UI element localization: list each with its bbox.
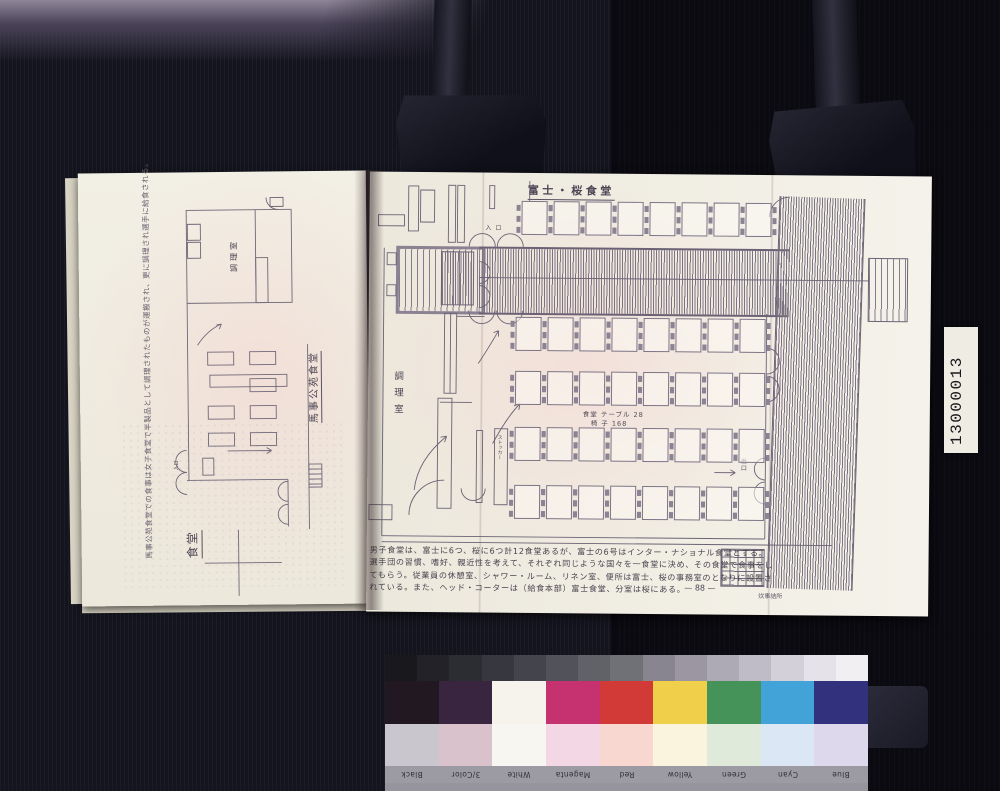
chair <box>766 433 770 439</box>
pastel-patch <box>385 724 439 766</box>
chair <box>669 490 673 496</box>
chair <box>541 500 545 506</box>
chair <box>701 501 705 507</box>
grayscale-step <box>449 655 481 681</box>
chair <box>542 386 546 392</box>
chair <box>573 489 577 495</box>
left-dining-label: 食堂 <box>183 530 202 558</box>
patch-label: Red <box>600 766 654 783</box>
dining-table <box>610 428 636 462</box>
chair <box>766 399 770 405</box>
chair <box>670 443 674 449</box>
chair <box>734 433 738 439</box>
chair <box>644 217 648 223</box>
chair <box>670 432 674 438</box>
chair <box>639 322 643 328</box>
dining-table <box>643 372 669 406</box>
patch-label: 3/Color <box>439 766 493 783</box>
dining-table <box>514 485 540 519</box>
chair <box>701 454 705 460</box>
left-floorplan <box>78 171 371 607</box>
chair <box>701 512 705 518</box>
grayscale-step <box>385 655 417 681</box>
pastel-row <box>385 724 868 766</box>
chair <box>517 205 521 211</box>
chair <box>606 432 610 438</box>
book-clip-stem <box>431 0 472 101</box>
chair <box>766 377 770 383</box>
chair <box>702 333 706 339</box>
chair <box>542 397 546 403</box>
chair <box>574 431 578 437</box>
chair <box>574 386 578 392</box>
chair <box>670 376 674 382</box>
chair <box>708 218 712 224</box>
chair <box>541 453 545 459</box>
dining-table <box>675 372 701 406</box>
chair <box>735 323 739 329</box>
grayscale-step <box>771 655 803 681</box>
chair <box>574 343 578 349</box>
chair <box>607 322 611 328</box>
chair <box>766 444 770 450</box>
color-patch <box>761 681 815 724</box>
chair <box>638 344 642 350</box>
chair <box>573 511 577 517</box>
chair <box>606 443 610 449</box>
color-patch <box>546 681 600 724</box>
chair <box>605 454 609 460</box>
dining-table <box>521 201 547 235</box>
dining-table <box>553 201 579 235</box>
chair <box>638 387 642 393</box>
dining-table <box>707 373 733 407</box>
chair <box>703 322 707 328</box>
chair <box>638 432 642 438</box>
chair <box>638 398 642 404</box>
chair <box>766 388 770 394</box>
chair <box>671 322 675 328</box>
chair <box>574 442 578 448</box>
page-number: — 88 — <box>684 583 715 592</box>
chair <box>766 334 770 340</box>
chair <box>549 205 553 211</box>
dining-table <box>643 318 669 352</box>
chair <box>637 501 641 507</box>
chair <box>606 344 610 350</box>
chair <box>637 454 641 460</box>
chair <box>765 455 769 461</box>
chair <box>772 229 776 235</box>
chair <box>734 377 738 383</box>
chair <box>580 227 584 233</box>
dining-table <box>611 318 637 352</box>
chair <box>509 453 513 459</box>
chair <box>677 206 681 212</box>
chair <box>766 345 770 351</box>
dining-table <box>546 485 572 519</box>
patch-label: Blue <box>814 766 868 783</box>
chair <box>638 333 642 339</box>
chair <box>740 229 744 235</box>
chair <box>511 321 515 327</box>
kodak-brand-strip: Kodak Color Control Patches © Kodak, 200… <box>385 783 868 791</box>
dining-table <box>610 486 636 520</box>
dining-table <box>739 373 765 407</box>
body-paragraph: 男子食堂は、富士に6つ、桜に6つ計12食堂あるが、富士の6号はインター・ナショナ… <box>369 544 799 597</box>
chair <box>516 216 520 222</box>
dining-table <box>547 371 573 405</box>
archival-id-number: 13000013 <box>948 356 966 445</box>
chair <box>605 512 609 518</box>
chair <box>542 431 546 437</box>
chair <box>765 513 769 519</box>
dining-table <box>546 427 572 461</box>
chair <box>702 432 706 438</box>
pastel-patch <box>492 724 546 766</box>
chair <box>637 490 641 496</box>
chair <box>606 333 610 339</box>
chair <box>670 398 674 404</box>
dining-table <box>706 487 732 521</box>
chair <box>670 344 674 350</box>
archival-id-label: 13000013 <box>944 327 978 453</box>
grayscale-step <box>482 655 514 681</box>
chair <box>613 206 617 212</box>
dining-table <box>578 427 604 461</box>
dining-table <box>681 202 707 236</box>
chair <box>509 500 513 506</box>
pastel-patch <box>814 724 868 766</box>
chair <box>573 453 577 459</box>
grayscale-step <box>675 655 707 681</box>
patch-label-row: Black3/ColorWhiteMagentaRedYellowGreenCy… <box>385 766 868 783</box>
dining-table <box>515 317 541 351</box>
chair <box>734 388 738 394</box>
chair <box>741 207 745 213</box>
patch-row <box>385 681 868 724</box>
chair <box>702 344 706 350</box>
chair <box>644 228 648 234</box>
color-patch <box>385 681 439 724</box>
chair <box>734 334 738 340</box>
chair <box>676 228 680 234</box>
left-plan-title: 馬事公苑食堂 <box>305 351 323 423</box>
chair <box>542 332 546 338</box>
chair <box>543 321 547 327</box>
dining-table <box>649 202 675 236</box>
chair <box>702 387 706 393</box>
chair <box>548 216 552 222</box>
right-page: 富士・桜食堂 <box>366 172 932 617</box>
pastel-patch <box>600 724 654 766</box>
chair <box>669 512 673 518</box>
chair <box>573 500 577 506</box>
dining-table <box>674 486 700 520</box>
annex-label: 炊事詰所 <box>758 591 782 600</box>
color-patch <box>439 681 493 724</box>
dining-table <box>515 371 541 405</box>
patch-label: Magenta <box>546 766 600 783</box>
left-kitchen-label: 調理室 <box>228 239 239 272</box>
chair <box>612 217 616 223</box>
grayscale-step <box>836 655 868 681</box>
kodak-color-bar: Black3/ColorWhiteMagentaRedYellowGreenCy… <box>385 655 868 791</box>
dining-table <box>617 202 643 236</box>
chair <box>575 321 579 327</box>
chair <box>740 218 744 224</box>
dining-table <box>738 429 764 463</box>
chair <box>574 375 578 381</box>
grayscale-step <box>804 655 836 681</box>
patch-label: White <box>492 766 546 783</box>
chair <box>733 491 737 497</box>
chair <box>733 513 737 519</box>
chair <box>676 217 680 223</box>
dining-table <box>707 319 733 353</box>
chair <box>509 489 513 495</box>
color-patch <box>814 681 868 724</box>
grayscale-step <box>643 655 675 681</box>
chair <box>541 511 545 517</box>
chair <box>772 218 776 224</box>
dining-table <box>642 428 668 462</box>
chair <box>574 332 578 338</box>
chair <box>509 511 513 517</box>
chair <box>767 323 771 329</box>
chair <box>645 206 649 212</box>
book-clip-stem <box>812 0 860 115</box>
dining-table <box>706 429 732 463</box>
chair <box>574 397 578 403</box>
dining-table <box>675 318 701 352</box>
chair <box>510 431 514 437</box>
chair <box>542 442 546 448</box>
chair <box>765 491 769 497</box>
chair <box>670 333 674 339</box>
dining-table <box>578 485 604 519</box>
pastel-patch <box>653 724 707 766</box>
chair <box>733 502 737 508</box>
grayscale-step <box>739 655 771 681</box>
patch-label: Cyan <box>761 766 815 783</box>
chair <box>606 376 610 382</box>
color-patch <box>707 681 761 724</box>
chair <box>510 343 514 349</box>
chair <box>637 512 641 518</box>
dining-table <box>713 203 739 237</box>
dining-table <box>674 428 700 462</box>
background-top-glow <box>0 0 614 62</box>
chair <box>606 398 610 404</box>
color-patch <box>492 681 546 724</box>
chair <box>510 442 514 448</box>
book-gutter-shadow <box>354 170 384 610</box>
color-patch <box>653 681 707 724</box>
color-patch <box>600 681 654 724</box>
pastel-patch <box>707 724 761 766</box>
grayscale-step <box>514 655 546 681</box>
chair <box>510 375 514 381</box>
chair <box>702 443 706 449</box>
pastel-patch <box>546 724 600 766</box>
chair <box>708 229 712 235</box>
chair <box>606 387 610 393</box>
dining-table <box>585 201 611 235</box>
chair <box>669 501 673 507</box>
dining-table <box>547 317 573 351</box>
dining-table <box>745 203 771 237</box>
dining-table <box>579 371 605 405</box>
grayscale-step <box>546 655 578 681</box>
chair <box>510 386 514 392</box>
color-bar-weight <box>862 686 928 748</box>
pastel-patch <box>761 724 815 766</box>
chair <box>516 227 520 233</box>
chair <box>605 490 609 496</box>
grayscale-step <box>610 655 642 681</box>
dining-table <box>579 317 605 351</box>
chair <box>638 376 642 382</box>
chair <box>734 444 738 450</box>
chair <box>734 399 738 405</box>
dining-table <box>642 486 668 520</box>
left-entrance-label: 入口 <box>173 460 180 470</box>
patch-label: Green <box>707 766 761 783</box>
chair <box>702 398 706 404</box>
chair <box>701 490 705 496</box>
chair <box>581 205 585 211</box>
chair <box>548 227 552 233</box>
chair <box>773 207 777 213</box>
chair <box>612 228 616 234</box>
chair <box>541 489 545 495</box>
chair <box>542 343 546 349</box>
chair <box>638 443 642 449</box>
dining-table <box>611 372 637 406</box>
chair <box>510 397 514 403</box>
chair <box>702 376 706 382</box>
chair <box>734 345 738 351</box>
chair <box>670 387 674 393</box>
grayscale-step <box>578 655 610 681</box>
chair <box>709 207 713 213</box>
chair <box>765 502 769 508</box>
chair <box>510 332 514 338</box>
pastel-patch <box>439 724 493 766</box>
grayscale-strip <box>385 655 868 681</box>
chair <box>605 501 609 507</box>
chair <box>669 454 673 460</box>
grayscale-step <box>417 655 449 681</box>
dining-table <box>738 487 764 521</box>
dining-table <box>739 319 765 353</box>
dining-table <box>514 427 540 461</box>
grayscale-step <box>707 655 739 681</box>
archival-photo: 馬事公苑食堂での食事は女子食堂で半製品として調理されたものが運搬され、更に調理さ… <box>0 0 1000 791</box>
chair <box>733 455 737 461</box>
chair <box>542 375 546 381</box>
patch-label: Yellow <box>653 766 707 783</box>
chair <box>580 216 584 222</box>
left-page: 馬事公苑食堂での食事は女子食堂で半製品として調理されたものが運搬され、更に調理さ… <box>78 171 371 607</box>
patch-label: Black <box>385 766 439 783</box>
